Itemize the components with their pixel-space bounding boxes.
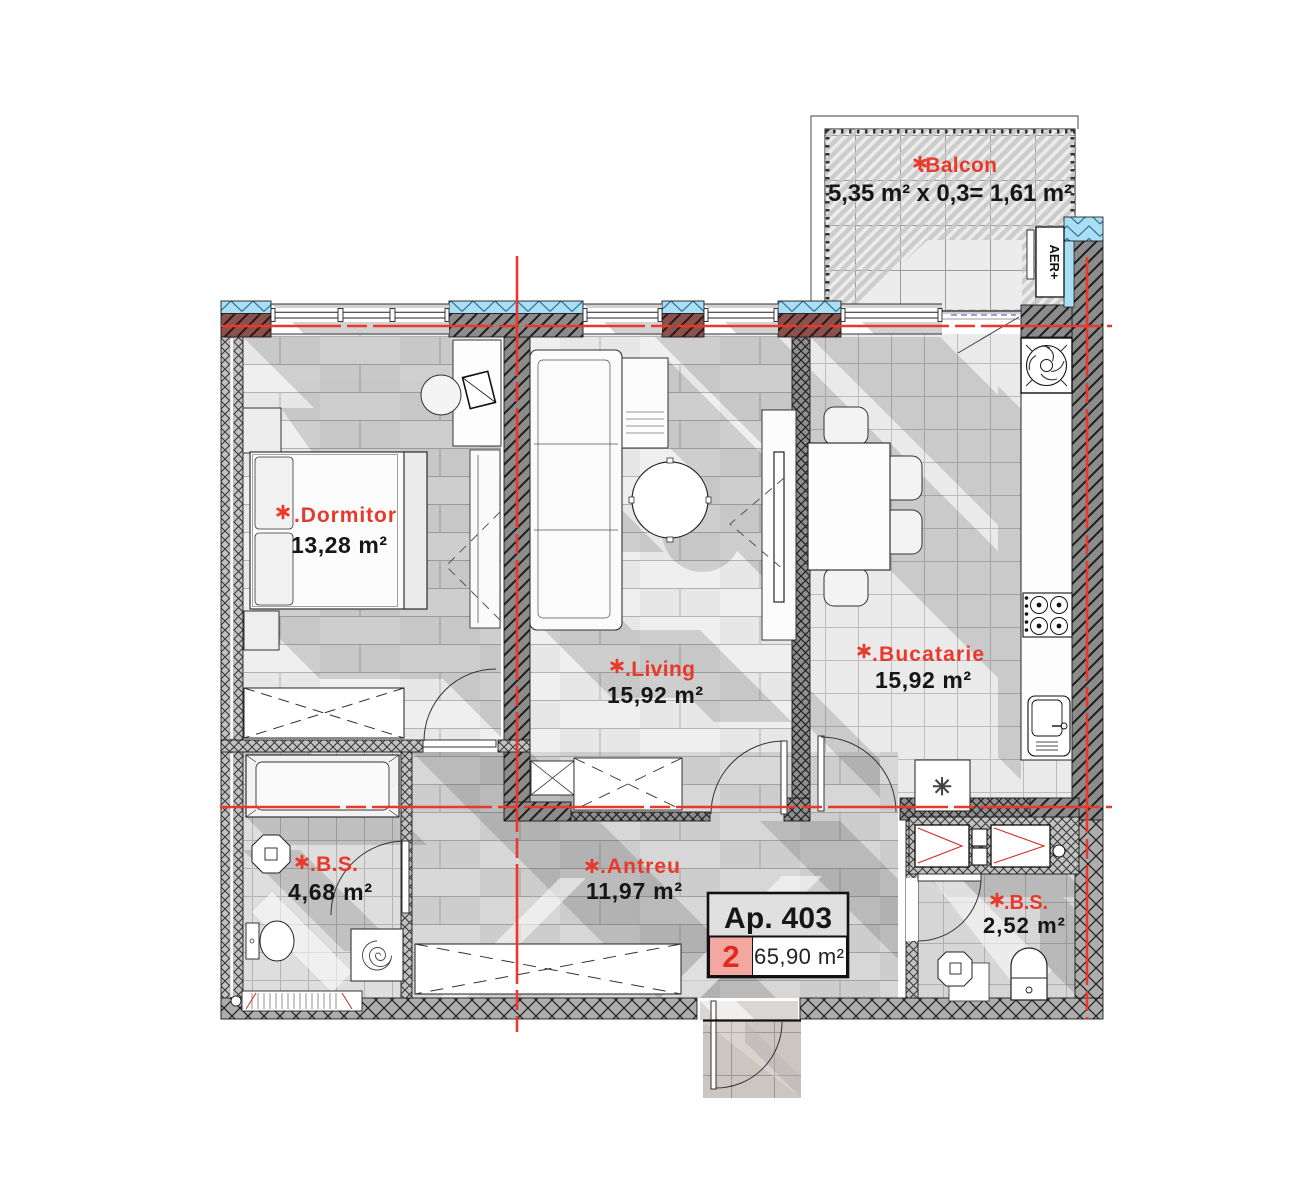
svg-text:13,28 m²: 13,28 m² bbox=[291, 532, 387, 558]
svg-text:.B.S.: .B.S. bbox=[1004, 892, 1048, 914]
svg-text:.Bucatarie: .Bucatarie bbox=[872, 643, 984, 666]
svg-text:Ap. 403: Ap. 403 bbox=[724, 902, 832, 935]
svg-text:2,52 m²: 2,52 m² bbox=[983, 913, 1065, 938]
svg-text:✳: ✳ bbox=[932, 774, 952, 801]
svg-text:.Living: .Living bbox=[625, 658, 695, 681]
svg-text:.Balcon: .Balcon bbox=[919, 154, 997, 177]
svg-text:11,97 m²: 11,97 m² bbox=[586, 878, 682, 904]
svg-text:.Antreu: .Antreu bbox=[600, 855, 680, 878]
svg-text:.B.S.: .B.S. bbox=[310, 853, 358, 876]
svg-text:15,92 m²: 15,92 m² bbox=[607, 682, 703, 708]
svg-text:15,92 m²: 15,92 m² bbox=[875, 667, 971, 693]
svg-text:4,68 m²: 4,68 m² bbox=[288, 879, 372, 905]
svg-text:AER+: AER+ bbox=[1047, 244, 1062, 279]
svg-text:5,35 m² x 0,3= 1,61 m²: 5,35 m² x 0,3= 1,61 m² bbox=[828, 180, 1072, 207]
svg-text:2: 2 bbox=[722, 939, 739, 974]
svg-text:65,90 m²: 65,90 m² bbox=[754, 944, 844, 969]
svg-text:.Dormitor: .Dormitor bbox=[294, 504, 396, 527]
